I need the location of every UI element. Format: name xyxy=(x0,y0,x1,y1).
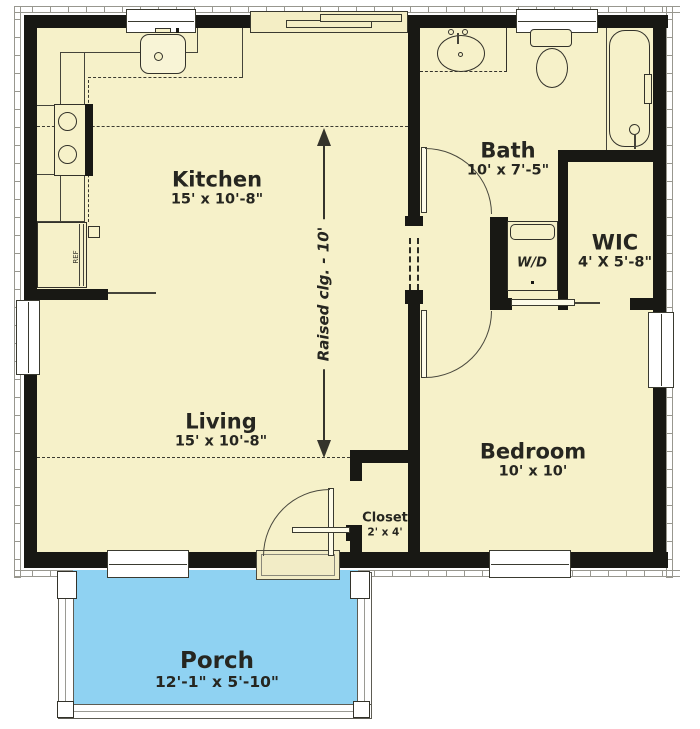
siding-right xyxy=(666,6,673,578)
wall-bedroom-top-a xyxy=(490,298,512,310)
counter-jog xyxy=(197,28,198,53)
label-bedroom-dims: 10' x 10' xyxy=(480,464,586,481)
porch-post-top-right xyxy=(350,571,370,599)
label-bath-name: Bath xyxy=(480,139,535,163)
wall-wd-nook-left xyxy=(490,217,508,310)
toilet-bowl xyxy=(536,48,568,88)
burner-bottom xyxy=(58,145,77,164)
label-living-name: Living xyxy=(185,410,256,434)
wall-center-upper xyxy=(408,28,420,226)
refrigerator-handle xyxy=(88,226,100,238)
bathtub-ledge xyxy=(644,74,652,104)
porch-post-bottom-right xyxy=(353,701,370,718)
vanity-spout xyxy=(457,33,459,44)
wall-center-lower xyxy=(408,300,420,552)
wall-right xyxy=(653,15,666,568)
cased-opening xyxy=(409,238,419,290)
kitchen-stub-line xyxy=(108,292,156,294)
washer-dryer-panel xyxy=(510,224,555,240)
vanity-drain xyxy=(458,52,463,57)
wall-bedroom-top-b xyxy=(630,298,653,310)
window-living-left xyxy=(16,300,40,375)
porch-post-bottom-left xyxy=(57,701,74,718)
wall-closet-left-c xyxy=(350,541,362,552)
wall-center-jamb-upper xyxy=(405,216,423,226)
window-bedroom-right xyxy=(648,312,674,388)
wic-door-line xyxy=(575,302,600,304)
label-bath-dims: 10' x 7'-5" xyxy=(467,163,549,180)
vanity-faucet-right xyxy=(462,29,468,35)
raised-ceiling-note: Raised clg. - 10' xyxy=(314,219,333,369)
vanity-faucet-left xyxy=(448,29,454,35)
refrigerator-label: REF xyxy=(72,250,80,263)
upper-cabinet-dash-top xyxy=(88,77,242,78)
label-porch: Porch 12'-1" x 5'-10" xyxy=(155,648,279,692)
wall-closet-left-a xyxy=(350,463,362,481)
label-living-dims: 15' x 10'-8" xyxy=(175,434,267,451)
front-door-threshold-inner xyxy=(261,554,335,576)
wall-bath-wic xyxy=(558,150,653,162)
kitchen-sink-drain xyxy=(154,52,163,61)
kitchen-faucet xyxy=(155,28,171,33)
kitchen-faucet-dot xyxy=(176,28,179,33)
window-living-bottom xyxy=(107,550,189,578)
label-wic-name: WIC xyxy=(592,231,638,255)
range-front xyxy=(85,104,93,176)
washer-dryer-label: W/D xyxy=(517,257,547,272)
wic-door-leaf xyxy=(511,299,575,306)
label-porch-dims: 12'-1" x 5'-10" xyxy=(155,674,279,692)
porch-post-top-left xyxy=(57,571,77,599)
label-bedroom-name: Bedroom xyxy=(480,440,586,464)
label-bedroom: Bedroom 10' x 10' xyxy=(480,440,586,481)
label-bath: Bath 10' x 7'-5" xyxy=(467,139,549,180)
porch-rail-bottom-line xyxy=(60,711,370,712)
label-kitchen-name: Kitchen xyxy=(172,168,262,192)
refrigerator-face-b xyxy=(83,224,84,286)
label-closet: Closet 2' x 4' xyxy=(362,512,408,539)
kitchen-sink xyxy=(140,34,186,74)
siding-left xyxy=(14,6,21,578)
arrow-down-icon xyxy=(317,440,331,458)
wall-closet-top xyxy=(350,450,420,463)
arrow-up-icon xyxy=(317,128,331,146)
tub-faucet-stem xyxy=(634,134,636,149)
label-living: Living 15' x 10'-8" xyxy=(175,410,267,451)
label-wic: WIC 4' X 5'-8" xyxy=(578,231,652,272)
closet-door-leaf xyxy=(292,527,350,533)
window-bedroom-bottom xyxy=(489,550,571,578)
tub-deck-line xyxy=(606,28,607,150)
floor-plan: Raised clg. - 10' REF W/D Kitchen 15' x … xyxy=(0,0,700,729)
label-wic-dims: 4' X 5'-8" xyxy=(578,255,652,272)
label-kitchen: Kitchen 15' x 10'-8" xyxy=(171,168,263,209)
label-closet-name: Closet xyxy=(362,511,408,526)
wall-wic-left xyxy=(558,150,568,310)
burner-top xyxy=(58,112,77,131)
counter-end xyxy=(242,28,243,78)
toilet-tank xyxy=(530,29,572,47)
label-kitchen-dims: 15' x 10'-8" xyxy=(171,192,263,209)
label-porch-name: Porch xyxy=(180,648,254,674)
washer-dryer-dot xyxy=(531,281,534,284)
wall-kitchen-stub xyxy=(24,289,108,300)
window-kitchen-wide-sash-b xyxy=(320,14,402,22)
ceiling-dash-living xyxy=(37,457,350,458)
label-closet-dims: 2' x 4' xyxy=(362,526,408,538)
